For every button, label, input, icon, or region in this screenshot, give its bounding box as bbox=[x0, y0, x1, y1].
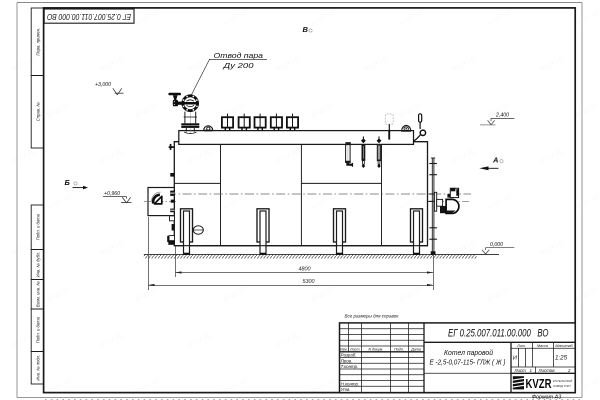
svg-text:Подп. и дата: Подп. и дата bbox=[36, 316, 41, 343]
svg-text:Котел паровой: Котел паровой bbox=[444, 348, 493, 357]
svg-text:N докум.: N докум. bbox=[368, 348, 383, 352]
svg-text:1:25: 1:25 bbox=[555, 355, 568, 362]
svg-text:KVZR: KVZR bbox=[526, 376, 552, 391]
svg-text:Взам. инв. №: Взам. инв. № bbox=[36, 281, 41, 307]
svg-text:2,400: 2,400 bbox=[495, 113, 509, 119]
svg-text:+3,000: +3,000 bbox=[95, 82, 111, 88]
svg-text:ЗАВОД РЭП: ЗАВОД РЭП bbox=[553, 384, 572, 388]
svg-text:Подп. и дата: Подп. и дата bbox=[36, 213, 41, 240]
svg-text:+0,960: +0,960 bbox=[104, 191, 120, 197]
svg-text:Утв.: Утв. bbox=[341, 387, 351, 392]
svg-text:Подп.: Подп. bbox=[394, 348, 404, 352]
svg-text:Ду 200: Ду 200 bbox=[222, 63, 253, 70]
svg-text:Перв. примен.: Перв. примен. bbox=[36, 28, 41, 56]
svg-text:А: А bbox=[492, 156, 498, 165]
svg-text:ЕГ 0.25.007.011.00.000 ВО: ЕГ 0.25.007.011.00.000 ВО bbox=[47, 12, 131, 21]
svg-text:Б: Б bbox=[65, 178, 71, 187]
svg-text:Все размеры для справок: Все размеры для справок bbox=[345, 313, 400, 318]
svg-text:Масштаб: Масштаб bbox=[555, 344, 573, 348]
svg-text:Инв. № подл.: Инв. № подл. bbox=[36, 355, 41, 381]
svg-text:Лист: Лист bbox=[349, 348, 360, 352]
svg-text:В: В bbox=[303, 25, 309, 34]
svg-text:2: 2 bbox=[567, 368, 571, 373]
svg-text:Лист: Лист bbox=[514, 368, 527, 373]
svg-text:4800: 4800 bbox=[299, 266, 311, 272]
svg-text:ЕГ 0.25.007.011.00.000 ВО: ЕГ 0.25.007.011.00.000 ВО bbox=[448, 328, 549, 340]
svg-text:Т.контр.: Т.контр. bbox=[341, 364, 359, 369]
svg-text:КОТЕЛЬНЫЙ: КОТЕЛЬНЫЙ bbox=[553, 379, 573, 383]
svg-text:Пров.: Пров. bbox=[341, 358, 353, 363]
svg-text:Е -2,5-0,07-115- ГЛЖ ( Ж ): Е -2,5-0,07-115- ГЛЖ ( Ж ) bbox=[430, 360, 506, 367]
svg-text:Листов: Листов bbox=[538, 368, 556, 373]
svg-text:5300: 5300 bbox=[303, 279, 315, 285]
svg-text:Отвод пара: Отвод пара bbox=[214, 52, 264, 60]
svg-text:Дата: Дата bbox=[410, 348, 421, 352]
svg-text:Инв. № дубл.: Инв. № дубл. bbox=[36, 252, 41, 278]
svg-text:Лит.: Лит. bbox=[516, 344, 526, 348]
svg-text:Справ. №: Справ. № bbox=[36, 102, 41, 121]
svg-text:Изм.: Изм. bbox=[340, 348, 348, 352]
svg-text:0,000: 0,000 bbox=[490, 242, 503, 248]
svg-text:Разраб.: Разраб. bbox=[341, 353, 357, 358]
svg-text:Масса: Масса bbox=[537, 344, 548, 348]
svg-text:Н.контр.: Н.контр. bbox=[341, 381, 360, 386]
